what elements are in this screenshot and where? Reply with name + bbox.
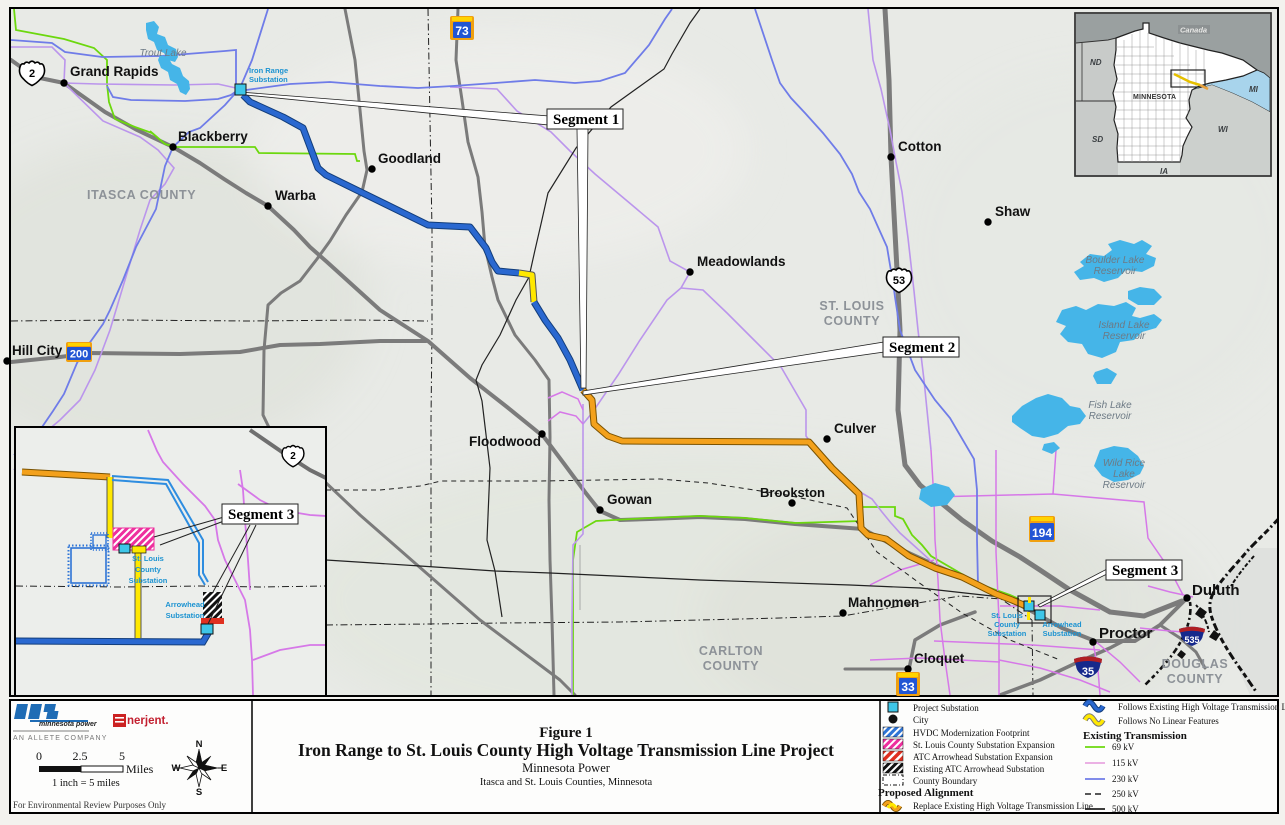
svg-text:Miles: Miles [126, 762, 154, 776]
svg-text:Cotton: Cotton [898, 139, 941, 154]
svg-text:1 inch = 5 miles: 1 inch = 5 miles [52, 778, 120, 789]
svg-text:W: W [172, 763, 181, 774]
svg-text:SD: SD [1092, 135, 1103, 144]
svg-text:St. Louis County Substation Ex: St. Louis County Substation Expansion [913, 740, 1055, 750]
svg-text:Grand Rapids: Grand Rapids [70, 64, 159, 79]
svg-text:200: 200 [70, 349, 88, 361]
svg-text:Mahnomen: Mahnomen [848, 595, 919, 610]
svg-text:COUNTY: COUNTY [824, 314, 880, 328]
svg-text:Iron Range: Iron Range [249, 66, 288, 75]
svg-text:MINNESOTA: MINNESOTA [1133, 94, 1176, 101]
svg-text:115 kV: 115 kV [1112, 758, 1139, 768]
svg-text:ND: ND [1090, 58, 1102, 67]
svg-text:Blackberry: Blackberry [178, 129, 248, 144]
svg-text:Proctor: Proctor [1099, 625, 1153, 642]
svg-text:S: S [196, 787, 202, 798]
svg-text:E: E [221, 763, 227, 774]
svg-text:Follows No Linear Features: Follows No Linear Features [1118, 716, 1219, 726]
svg-text:Culver: Culver [834, 421, 877, 436]
svg-text:Goodland: Goodland [378, 151, 441, 166]
svg-text:COUNTY: COUNTY [703, 659, 759, 673]
svg-text:Segment 2: Segment 2 [889, 340, 955, 356]
svg-text:Reservoir: Reservoir [1103, 331, 1146, 342]
svg-text:2: 2 [290, 451, 296, 462]
svg-text:5: 5 [119, 749, 125, 763]
svg-text:DOUGLAS: DOUGLAS [1162, 657, 1229, 671]
svg-text:Arrowhead: Arrowhead [1042, 620, 1082, 629]
svg-text:WI: WI [1218, 125, 1229, 134]
svg-text:Boulder Lake: Boulder Lake [1086, 255, 1145, 266]
svg-text:69 kV: 69 kV [1112, 742, 1135, 752]
svg-text:Proposed Alignment: Proposed Alignment [878, 787, 974, 799]
svg-text:County: County [994, 620, 1021, 629]
svg-text:Substation: Substation [1043, 629, 1082, 638]
svg-text:City: City [913, 715, 929, 725]
svg-text:Arrowhead: Arrowhead [165, 600, 205, 609]
svg-text:Gowan: Gowan [607, 492, 652, 507]
svg-text:Substation: Substation [166, 611, 205, 620]
svg-text:HVDC Modernization Footprint: HVDC Modernization Footprint [913, 728, 1030, 738]
svg-text:0: 0 [36, 749, 42, 763]
svg-text:Segment 3: Segment 3 [1112, 563, 1178, 579]
svg-text:Meadowlands: Meadowlands [697, 254, 786, 269]
svg-text:35: 35 [1082, 666, 1094, 678]
svg-text:ST. LOUIS: ST. LOUIS [819, 299, 884, 313]
svg-text:73: 73 [455, 24, 469, 38]
svg-text:Fish Lake: Fish Lake [1088, 400, 1132, 411]
svg-text:CARLTON: CARLTON [699, 644, 763, 658]
svg-text:Segment 3: Segment 3 [228, 507, 294, 523]
svg-text:N: N [196, 739, 203, 750]
svg-text:For Environmental Review Purpo: For Environmental Review Purposes Only [13, 800, 166, 810]
svg-text:St. Louis: St. Louis [991, 611, 1023, 620]
svg-text:Canada: Canada [1180, 26, 1207, 35]
svg-text:Warba: Warba [275, 188, 316, 203]
svg-text:Existing Transmission: Existing Transmission [1083, 730, 1187, 742]
svg-text:230 kV: 230 kV [1112, 774, 1139, 784]
svg-text:Hill City: Hill City [12, 343, 63, 358]
svg-text:ATC Arrowhead Substation Expan: ATC Arrowhead Substation Expansion [913, 752, 1053, 762]
svg-text:2.5: 2.5 [73, 749, 88, 763]
svg-text:500 kV: 500 kV [1112, 804, 1139, 814]
svg-text:Island Lake: Island Lake [1098, 320, 1150, 331]
svg-text:ITASCA COUNTY: ITASCA COUNTY [87, 188, 196, 202]
svg-text:53: 53 [893, 275, 905, 287]
svg-text:minnesota power: minnesota power [39, 721, 98, 728]
svg-text:IA: IA [1160, 167, 1168, 176]
svg-text:COUNTY: COUNTY [1167, 672, 1223, 686]
svg-text:Cloquet: Cloquet [914, 651, 965, 666]
svg-text:33: 33 [901, 680, 915, 694]
svg-text:Existing ATC Arrowhead Substat: Existing ATC Arrowhead Substation [913, 764, 1045, 774]
svg-text:Floodwood: Floodwood [469, 434, 541, 449]
svg-text:Follows Existing High Voltage: Follows Existing High Voltage Transmissi… [1118, 702, 1285, 712]
svg-text:2: 2 [29, 68, 35, 80]
svg-text:Shaw: Shaw [995, 204, 1031, 219]
svg-text:Itasca and St. Louis Counties,: Itasca and St. Louis Counties, Minnesota [480, 777, 653, 788]
svg-text:Project Substation: Project Substation [913, 703, 979, 713]
svg-text:Trout Lake: Trout Lake [139, 48, 186, 59]
svg-text:St. Louis: St. Louis [132, 554, 164, 563]
svg-text:County: County [135, 565, 162, 574]
svg-text:Wild Rice: Wild Rice [1103, 458, 1146, 469]
svg-text:Duluth: Duluth [1192, 582, 1239, 599]
svg-text:Reservoir: Reservoir [1094, 266, 1137, 277]
svg-text:250 kV: 250 kV [1112, 789, 1139, 799]
svg-text:Substation: Substation [129, 576, 168, 585]
svg-text:Iron Range to St. Louis County: Iron Range to St. Louis County High Volt… [298, 740, 834, 760]
svg-text:Reservoir: Reservoir [1089, 411, 1132, 422]
svg-text:Reservoir: Reservoir [1103, 480, 1146, 491]
svg-text:County Boundary: County Boundary [913, 776, 978, 786]
svg-text:Figure 1: Figure 1 [539, 725, 592, 741]
svg-text:MI: MI [1249, 85, 1259, 94]
svg-text:Substation: Substation [988, 629, 1027, 638]
svg-text:535: 535 [1184, 635, 1199, 645]
svg-text:AN ALLETE COMPANY: AN ALLETE COMPANY [13, 735, 108, 742]
svg-text:Replace Existing High Voltage: Replace Existing High Voltage Transmissi… [913, 801, 1093, 811]
svg-text:nerjent.: nerjent. [127, 715, 169, 727]
svg-text:194: 194 [1032, 526, 1052, 540]
svg-text:Segment 1: Segment 1 [553, 112, 619, 128]
svg-text:Substation: Substation [249, 75, 288, 84]
svg-text:Minnesota Power: Minnesota Power [522, 761, 611, 775]
svg-text:Brookston: Brookston [760, 485, 825, 500]
svg-text:Lake: Lake [1113, 469, 1135, 480]
